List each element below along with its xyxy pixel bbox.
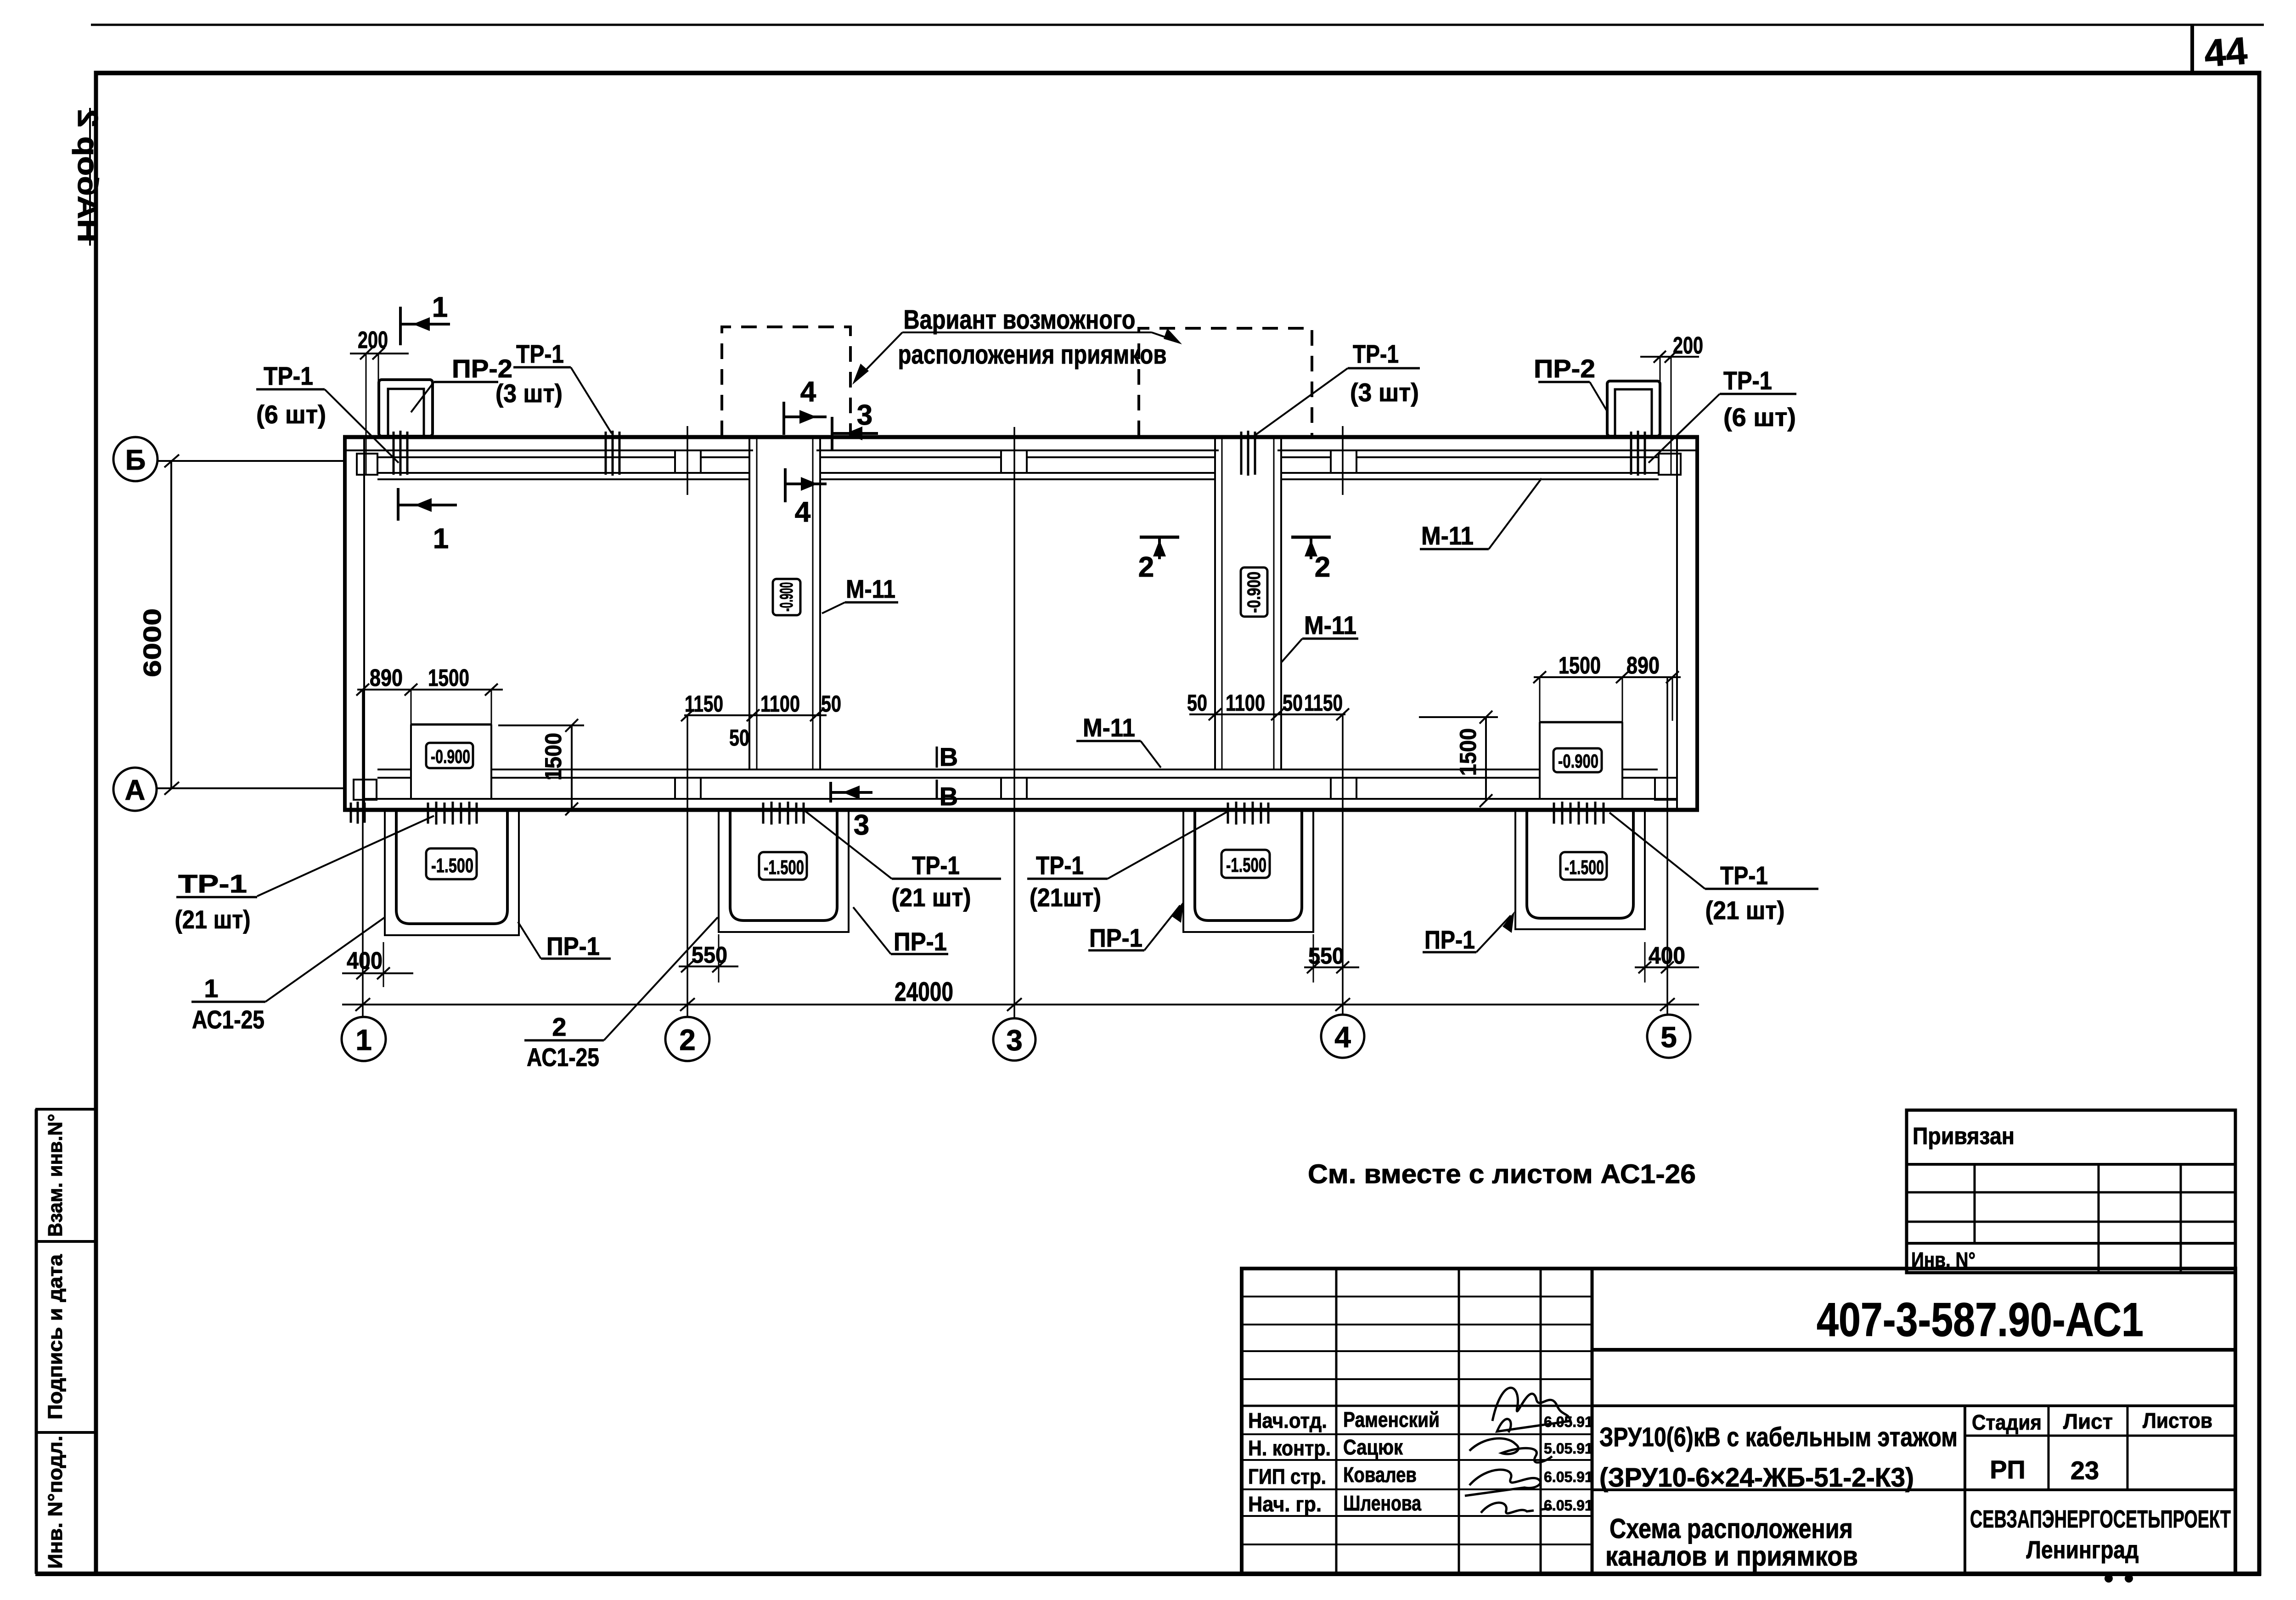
svg-text:(21 шт): (21 шт)	[175, 905, 251, 934]
svg-text:ТР-1: ТР-1	[264, 361, 313, 390]
svg-text:А: А	[125, 775, 146, 806]
svg-text:550: 550	[1308, 943, 1344, 969]
svg-text:Взам. инв.N°: Взам. инв.N°	[44, 1114, 67, 1237]
svg-text:М-11: М-11	[1421, 521, 1474, 550]
svg-text:407-3-587.90-АС1: 407-3-587.90-АС1	[1817, 1293, 2144, 1347]
svg-text:44: 44	[2203, 29, 2249, 75]
svg-text:РП: РП	[1990, 1455, 2026, 1484]
svg-text:АС1-25: АС1-25	[192, 1005, 264, 1034]
svg-text:ПР-1: ПР-1	[546, 932, 600, 960]
svg-text:Нач. гр.: Нач. гр.	[1248, 1492, 1322, 1516]
svg-text:3: 3	[857, 399, 872, 431]
svg-text:5: 5	[1660, 1021, 1677, 1054]
svg-text:(21шт): (21шт)	[1030, 883, 1101, 912]
svg-text:ПР-1: ПР-1	[1089, 923, 1142, 952]
svg-text:200: 200	[358, 327, 388, 354]
svg-text:-1.500: -1.500	[431, 854, 473, 877]
svg-text:Ковалев: Ковалев	[1343, 1463, 1417, 1487]
svg-text:4: 4	[800, 376, 816, 408]
svg-text:24000: 24000	[895, 977, 953, 1007]
svg-text:Схема расположения: Схема расположения	[1609, 1513, 1853, 1544]
svg-text:(21 шт): (21 шт)	[892, 883, 971, 912]
svg-text:ТР-1: ТР-1	[1353, 339, 1399, 368]
svg-text:50: 50	[1283, 690, 1303, 716]
svg-text:(21 шт): (21 шт)	[1705, 896, 1785, 925]
svg-text:ПР-1: ПР-1	[1424, 925, 1475, 954]
svg-text:М-11: М-11	[846, 574, 895, 603]
svg-text:СЕВЗАПЭНЕРГОСЕТЬПРОЕКТ: СЕВЗАПЭНЕРГОСЕТЬПРОЕКТ	[1970, 1505, 2231, 1533]
svg-text:1500: 1500	[1559, 652, 1601, 679]
svg-text:5.05.91: 5.05.91	[1544, 1440, 1593, 1457]
svg-text:(ЗРУ10-6×24-ЖБ-51-2-К3): (ЗРУ10-6×24-ЖБ-51-2-К3)	[1599, 1463, 1914, 1493]
svg-text:ТР-1: ТР-1	[1720, 861, 1768, 890]
svg-text:2: 2	[552, 1012, 566, 1041]
svg-text:1: 1	[204, 974, 218, 1003]
svg-text:-0.900: -0.900	[431, 746, 470, 767]
svg-text:ПР-1: ПР-1	[894, 927, 947, 956]
svg-text:М-11: М-11	[1083, 713, 1135, 742]
svg-text:каналов и приямков: каналов и приямков	[1605, 1541, 1858, 1572]
svg-text:200: 200	[1673, 332, 1703, 359]
svg-text:1: 1	[355, 1023, 372, 1056]
svg-text:(3 шт): (3 шт)	[495, 379, 563, 408]
svg-text:Инв. N°подл.: Инв. N°подл.	[44, 1436, 67, 1569]
svg-text:(6 шт): (6 шт)	[1723, 403, 1796, 432]
svg-text:4: 4	[1334, 1021, 1351, 1054]
svg-text:1: 1	[432, 292, 448, 323]
svg-text:ЗРУ10(6)кВ с кабельным этажом: ЗРУ10(6)кВ с кабельным этажом	[1599, 1422, 1958, 1452]
svg-text:ТР-1: ТР-1	[912, 851, 960, 880]
svg-text:АС1-25: АС1-25	[527, 1043, 599, 1072]
svg-text:(6 шт): (6 шт)	[256, 400, 326, 429]
svg-text:1100: 1100	[1226, 690, 1265, 716]
svg-text:Б: Б	[125, 444, 146, 476]
svg-text:-1.500: -1.500	[1226, 854, 1266, 876]
svg-text:Вариант возможного: Вариант возможного	[904, 305, 1136, 335]
svg-text:3: 3	[854, 809, 869, 841]
svg-text:550: 550	[692, 942, 727, 968]
svg-text:6000: 6000	[139, 608, 166, 677]
svg-text:-1.500: -1.500	[1564, 856, 1604, 879]
svg-text:В: В	[940, 742, 958, 771]
svg-text:3: 3	[1006, 1024, 1023, 1057]
svg-text:Лист: Лист	[2063, 1409, 2113, 1433]
svg-text:ГИП стр.: ГИП стр.	[1248, 1465, 1326, 1488]
svg-text:НАбор 2: НАбор 2	[72, 109, 103, 242]
svg-text:ТР-1: ТР-1	[1036, 851, 1084, 880]
svg-text:23: 23	[2071, 1456, 2099, 1485]
svg-text:2: 2	[1315, 551, 1330, 583]
svg-text:4: 4	[795, 496, 811, 528]
svg-text:ТР-1: ТР-1	[516, 339, 564, 368]
svg-text:Шленова: Шленова	[1343, 1491, 1421, 1515]
svg-text:-0.900: -0.900	[777, 582, 797, 612]
svg-text:400: 400	[1649, 943, 1685, 969]
svg-text:2: 2	[679, 1023, 696, 1056]
svg-text:См. вместе с листом АС1-26: См. вместе с листом АС1-26	[1308, 1159, 1696, 1189]
svg-text:ТР-1: ТР-1	[178, 869, 247, 898]
svg-text:6.05.91: 6.05.91	[1544, 1497, 1593, 1514]
svg-text:Н. контр.: Н. контр.	[1248, 1436, 1331, 1460]
svg-text:890: 890	[1626, 652, 1660, 679]
svg-text:Стадия: Стадия	[1972, 1410, 2042, 1434]
svg-text:Раменский: Раменский	[1343, 1408, 1440, 1432]
svg-text:-1.500: -1.500	[764, 856, 804, 879]
svg-text:-0.900: -0.900	[1244, 572, 1264, 613]
svg-text:Нач.отд.: Нач.отд.	[1248, 1409, 1327, 1432]
svg-text:6.05.91: 6.05.91	[1544, 1469, 1593, 1485]
svg-text:1100: 1100	[760, 691, 800, 717]
svg-text:50: 50	[821, 691, 841, 717]
svg-text:Листов: Листов	[2143, 1409, 2212, 1432]
svg-text:(3 шт): (3 шт)	[1350, 378, 1419, 407]
svg-text:Ленинград: Ленинград	[2026, 1536, 2139, 1564]
svg-text:1: 1	[433, 523, 449, 555]
svg-text:ПР-2: ПР-2	[1534, 354, 1595, 383]
svg-text:В: В	[940, 782, 958, 811]
svg-text:50: 50	[1187, 690, 1207, 716]
svg-text:ТР-1: ТР-1	[1723, 366, 1772, 395]
svg-text:400: 400	[347, 948, 383, 974]
svg-text:-0.900: -0.900	[1558, 750, 1598, 772]
svg-text:1150: 1150	[1304, 690, 1343, 716]
svg-text:М-11: М-11	[1304, 611, 1356, 640]
svg-text:1500: 1500	[540, 733, 566, 780]
svg-text:Подпись и дата: Подпись и дата	[44, 1254, 67, 1420]
svg-text:Сацюк: Сацюк	[1343, 1435, 1403, 1459]
svg-text:Привязан: Привязан	[1913, 1123, 2015, 1150]
svg-text:50: 50	[729, 725, 749, 751]
svg-text:1500: 1500	[428, 665, 469, 691]
svg-text:890: 890	[370, 665, 403, 691]
svg-text:1500: 1500	[1455, 728, 1481, 776]
svg-text:2: 2	[1138, 551, 1154, 583]
svg-text:расположения приямков: расположения приямков	[898, 340, 1167, 370]
svg-text:1150: 1150	[685, 691, 723, 717]
